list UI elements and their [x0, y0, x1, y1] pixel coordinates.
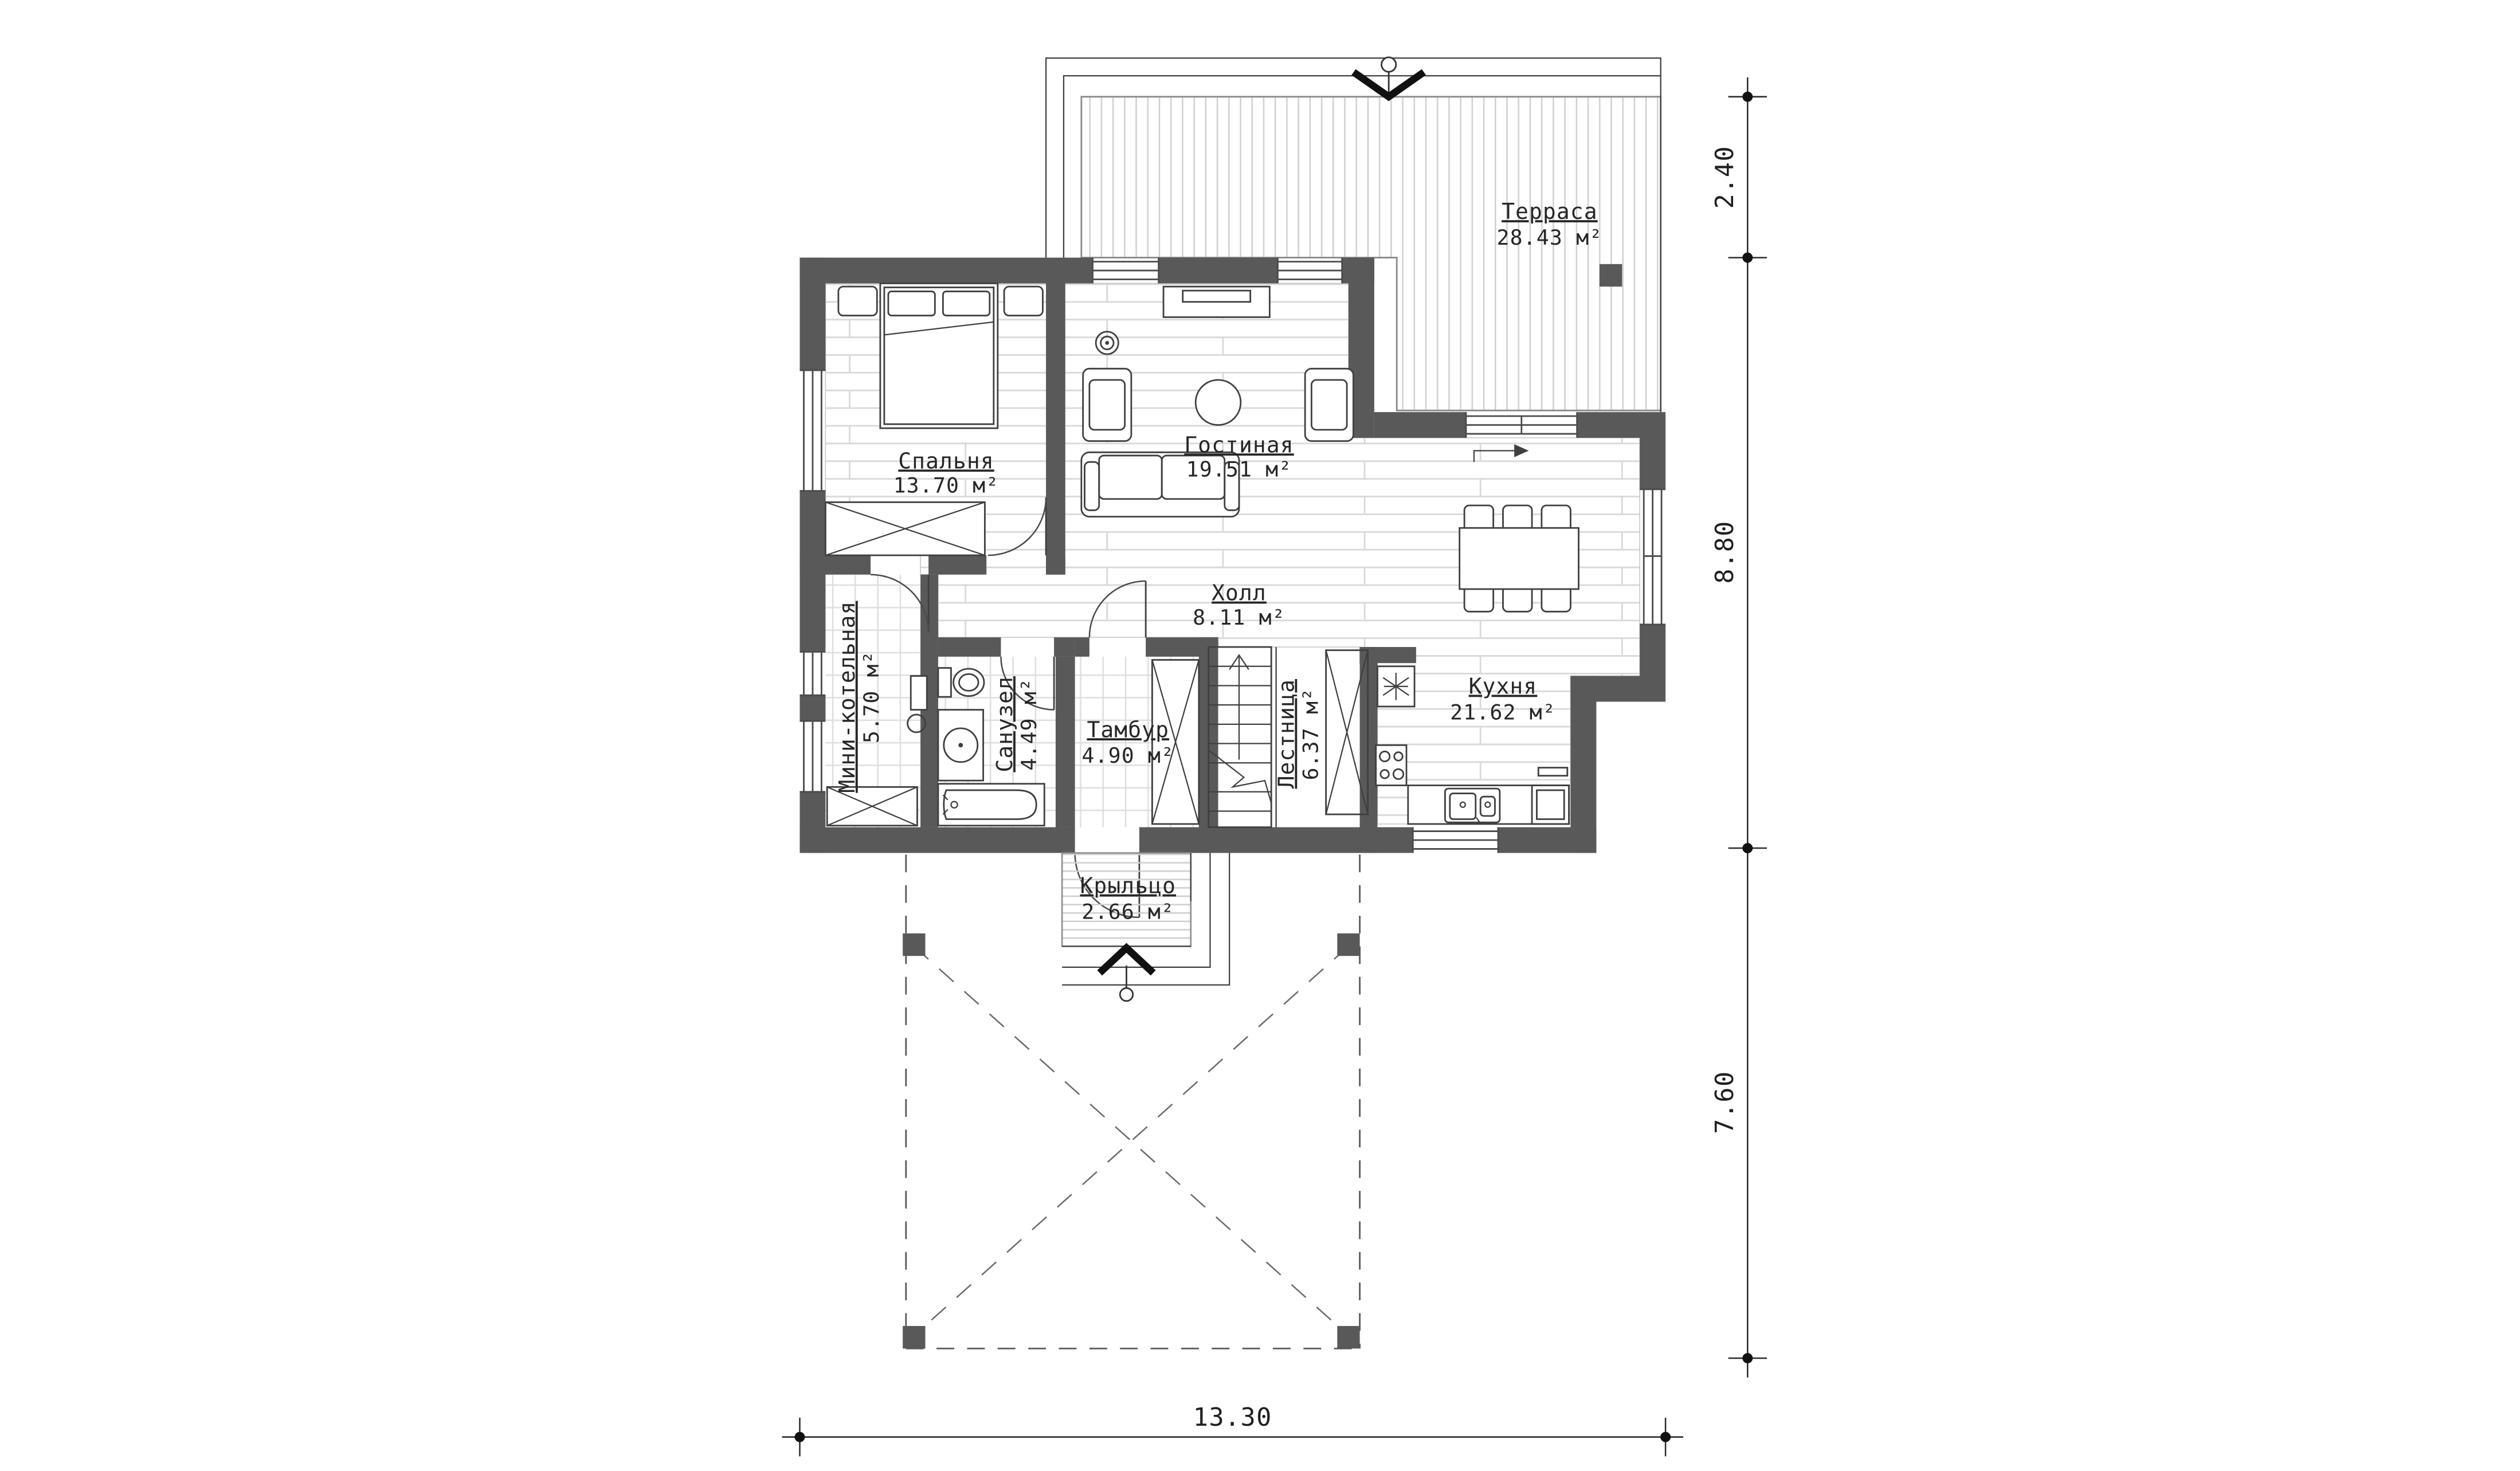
terrace-area: 28.43 м² [1497, 225, 1603, 250]
dim-terrace-depth: 2.40 [1711, 146, 1739, 209]
dim-house-depth: 8.80 [1711, 520, 1739, 583]
floor-plan-drawing: Терраса 28.43 м² Спальня 13.70 м² Гостин… [0, 0, 2520, 1471]
bedroom-area: 13.70 м² [893, 473, 1000, 498]
carport-post [1337, 933, 1359, 956]
bedroom-window [799, 370, 825, 491]
porch-label: Крыльцо [1080, 873, 1176, 899]
carport-post [1337, 1326, 1359, 1348]
carport-post [903, 1326, 925, 1348]
carport-post [903, 933, 925, 956]
dining-set [1460, 505, 1579, 611]
dining-right-window [1640, 489, 1665, 625]
hall-label: Холл [1212, 580, 1267, 606]
bedroom-label: Спальня [898, 448, 994, 473]
coffee-table [1196, 380, 1241, 425]
dim-total-width: 13.30 [1193, 1403, 1272, 1432]
terrace-entry-arrow [1357, 57, 1421, 97]
bathroom-area: 4.49 м² [1017, 678, 1041, 771]
bathtub [938, 784, 1044, 826]
kitchen-area: 21.62 м² [1450, 700, 1556, 724]
bed [880, 284, 998, 429]
boiler-area: 5.70 м² [859, 650, 884, 743]
stove [1376, 745, 1406, 785]
kitchen-counter [1408, 786, 1569, 824]
living-label: Гостиная [1184, 432, 1294, 457]
boiler-window-2 [799, 721, 825, 792]
tambour-label: Тамбур [1087, 717, 1169, 742]
dining-table [1460, 528, 1579, 589]
dimension-bottom: 13.30 [782, 1403, 1683, 1456]
living-window-right [1277, 258, 1342, 284]
boiler-window-1 [799, 652, 825, 695]
floor-plan-page: Терраса 28.43 м² Спальня 13.70 м² Гостин… [0, 0, 2520, 1471]
bathroom-sink [938, 710, 983, 781]
living-window-left [1092, 258, 1158, 284]
nightstand-left [838, 287, 877, 316]
dim-carport-depth: 7.60 [1711, 1070, 1739, 1133]
stairs-area: 6.37 м² [1299, 688, 1323, 780]
tambour-area: 4.90 м² [1081, 743, 1174, 768]
terrace-post [1600, 264, 1622, 287]
hall-area: 8.11 м² [1193, 605, 1286, 630]
dimension-right: 2.40 8.80 7.60 [1711, 77, 1767, 1378]
toilet [938, 668, 984, 697]
stairs-label: Лестница [1273, 679, 1299, 789]
kitchen-label: Кухня [1469, 673, 1538, 699]
tv-console [1163, 287, 1269, 317]
living-area: 19.51 м² [1186, 457, 1292, 481]
armchair-right [1305, 368, 1353, 441]
porch-area: 2.66 м² [1081, 900, 1174, 924]
kitchen-window [1413, 827, 1498, 853]
terrace-label: Терраса [1502, 199, 1598, 224]
boiler-unit [911, 676, 927, 710]
armchair-left [1083, 368, 1131, 441]
nightstand-right [1004, 287, 1043, 316]
boiler-label: Мини-котельная [834, 601, 860, 793]
ventilation-unit [1377, 666, 1414, 707]
porch-entry-arrow [1102, 948, 1150, 1001]
bedroom-wardrobe [825, 502, 985, 555]
bathroom-label: Санузел [992, 676, 1017, 772]
